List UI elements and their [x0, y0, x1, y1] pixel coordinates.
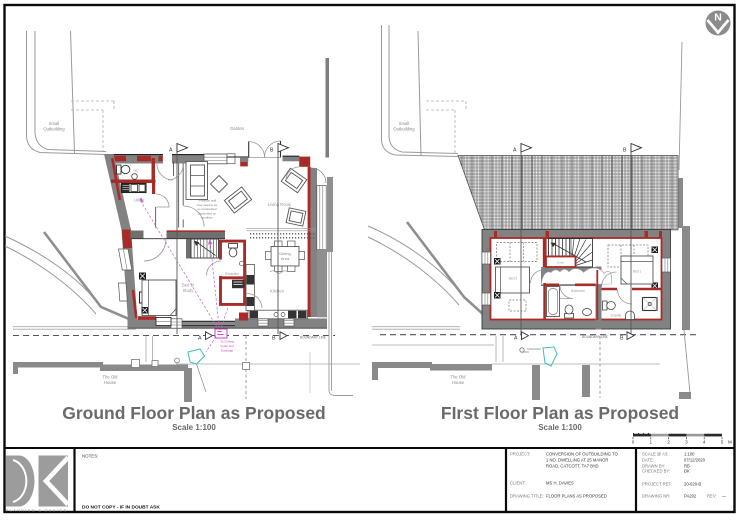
svg-text:Study: Study [183, 288, 195, 293]
svg-text:Outbuilding: Outbuilding [43, 127, 65, 132]
svg-text:DATE:: DATE: [642, 458, 654, 463]
svg-text:The Old: The Old [451, 375, 467, 380]
svg-text:MS H. DAVIES: MS H. DAVIES [546, 481, 574, 486]
svg-text:Drainage: Drainage [221, 349, 234, 353]
svg-text:Linen: Linen [557, 261, 565, 265]
svg-text:ROAD, CATCOTT, TA7 8HD: ROAD, CATCOTT, TA7 8HD [546, 464, 599, 469]
svg-text:Area: Area [281, 256, 290, 261]
svg-text:A: A [169, 148, 173, 154]
svg-text:5: 5 [721, 440, 724, 445]
svg-text:FIrst Floor Plan as Proposed: FIrst Floor Plan as Proposed [441, 403, 679, 423]
svg-text:B: B [270, 148, 274, 154]
svg-text:A: A [198, 336, 202, 342]
svg-text:Living Room: Living Room [268, 202, 292, 207]
svg-text:BOUNDARY LINE: BOUNDARY LINE [300, 335, 326, 339]
svg-text:CONVERSION OF OUTBUILDING TO: CONVERSION OF OUTBUILDING TO [546, 452, 618, 457]
svg-text:House: House [104, 380, 117, 385]
svg-text:1:100: 1:100 [684, 452, 695, 457]
svg-text:Kitchen: Kitchen [270, 289, 285, 294]
svg-text:1: 1 [650, 440, 653, 445]
svg-text:Bed 2: Bed 2 [509, 277, 518, 281]
svg-text:3: 3 [685, 440, 688, 445]
svg-text:SCALE @ A3:: SCALE @ A3: [642, 452, 668, 457]
svg-text:NOTES:: NOTES: [82, 454, 98, 459]
svg-text:The Old: The Old [103, 375, 119, 380]
svg-text:DRAWING NR:: DRAWING NR: [642, 494, 670, 499]
svg-text:B: B [623, 148, 627, 154]
svg-text:PROJECT:: PROJECT: [510, 452, 530, 457]
svg-text:Ensuite: Ensuite [611, 314, 622, 318]
svg-text:N: N [714, 12, 722, 24]
svg-text:House: House [452, 380, 465, 385]
svg-text:Voids Out: Voids Out [220, 344, 234, 348]
svg-text:A: A [514, 336, 518, 342]
svg-text:Ensuite: Ensuite [225, 271, 239, 276]
svg-text:07/12/2020: 07/12/2020 [684, 458, 706, 463]
svg-text:Small: Small [49, 121, 60, 126]
svg-text:DRAWING TITLE:: DRAWING TITLE: [510, 494, 544, 499]
svg-text:Bed 1: Bed 1 [633, 270, 642, 274]
svg-text:To Ceiling: To Ceiling [220, 340, 234, 344]
svg-text:REV:: REV: [707, 494, 717, 499]
svg-text:4: 4 [703, 440, 706, 445]
svg-text:Bathroom: Bathroom [571, 289, 585, 293]
svg-text:CLIENT:: CLIENT: [510, 481, 526, 486]
svg-text:2: 2 [667, 440, 670, 445]
svg-text:BOUNDARY LINE: BOUNDARY LINE [582, 335, 608, 339]
svg-text:1 NO. DWELLING AT 25 MANOR: 1 NO. DWELLING AT 25 MANOR [546, 458, 608, 463]
svg-text:M: M [728, 440, 732, 445]
svg-text:Scale 1:100: Scale 1:100 [538, 423, 582, 432]
svg-text:Small: Small [399, 121, 410, 126]
svg-text:FLOOR PLANS AS PROPOSED: FLOOR PLANS AS PROPOSED [546, 494, 607, 499]
svg-text:DK: DK [684, 469, 690, 474]
svg-text:A: A [513, 148, 517, 154]
svg-text:B: B [272, 336, 276, 342]
svg-text:Garden: Garden [230, 126, 245, 131]
svg-text:DO NOT COPY - IF IN DOUBT ASK: DO NOT COPY - IF IN DOUBT ASK [82, 505, 160, 511]
svg-text:20-020-B: 20-020-B [684, 482, 701, 487]
svg-text:PA202: PA202 [684, 494, 697, 499]
svg-text:PROJECT REF:: PROJECT REF: [642, 482, 672, 487]
svg-text:0: 0 [632, 440, 635, 445]
svg-text:Outbuilding: Outbuilding [393, 127, 415, 132]
svg-text:WC: WC [134, 169, 140, 173]
svg-text:Bed 3/: Bed 3/ [182, 283, 195, 288]
svg-text:Utility: Utility [134, 198, 145, 203]
svg-text:B: B [620, 336, 624, 342]
svg-text:PLANNING & DESIGN: PLANNING & DESIGN [6, 509, 68, 513]
svg-text:Ground Floor Plan as Proposed: Ground Floor Plan as Proposed [62, 403, 326, 423]
svg-text:Scale 1:100: Scale 1:100 [172, 423, 216, 432]
svg-text:CHECKED BY:: CHECKED BY: [642, 469, 670, 474]
